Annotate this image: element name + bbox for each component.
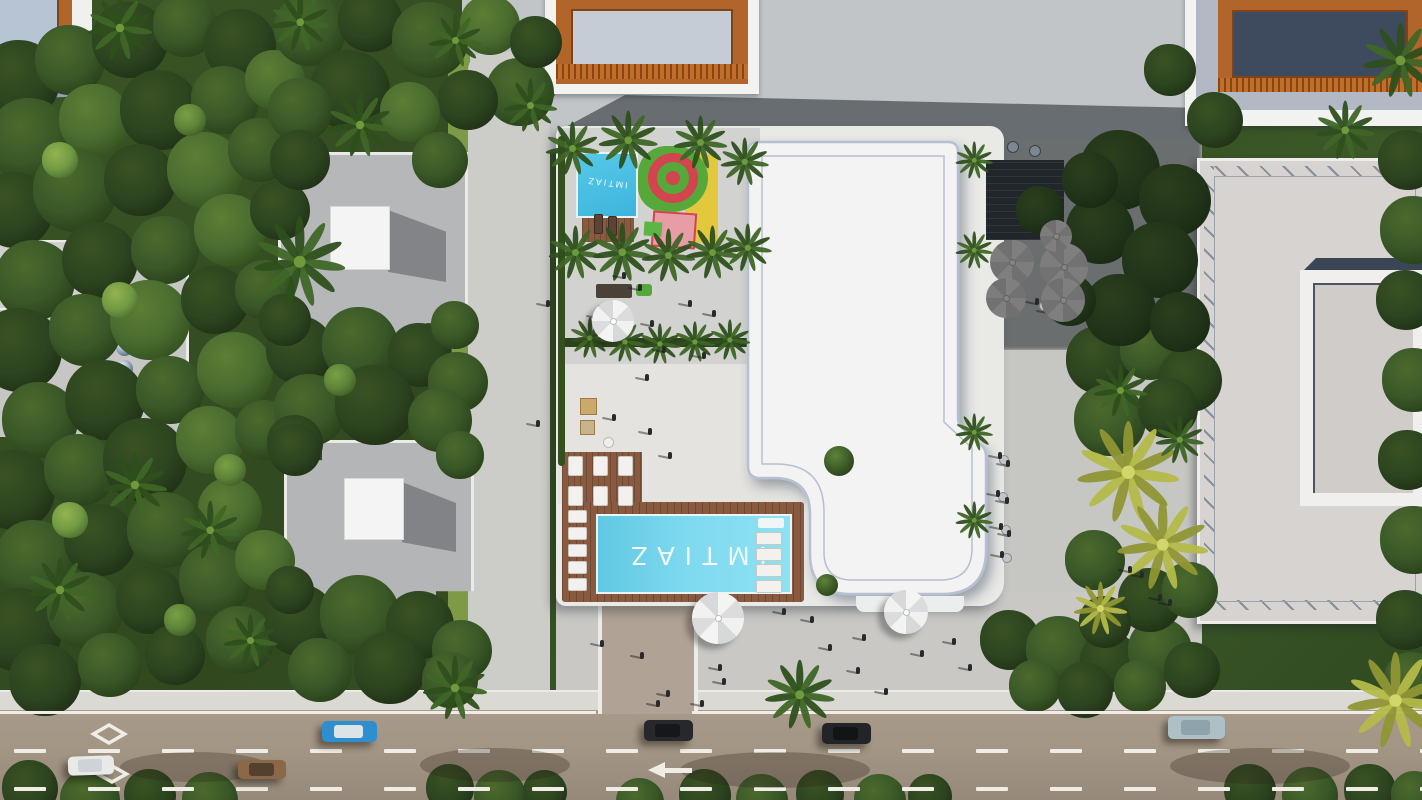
lane-dash [1346,787,1378,791]
person [862,634,866,641]
tree [354,632,426,704]
tree [1062,152,1118,208]
terrace-table [604,438,613,447]
palm-tree [955,413,994,452]
kids-pool-brand-text: IMTIAZ [578,175,637,192]
tree [164,604,196,636]
cafe-umbrella [884,590,928,634]
palm-tree [327,92,393,158]
palm-tree [1362,22,1422,99]
car [238,760,286,779]
person [536,420,540,427]
tree [131,216,199,284]
palm-tree [1116,498,1210,592]
tree [1376,590,1422,650]
lane-dash [828,787,860,791]
sun-lounger [568,544,587,557]
sun-lounger [618,486,633,506]
sun-lounger [756,580,782,593]
lane-dash [680,787,712,791]
lane-dash [310,749,342,753]
car [322,721,377,742]
palm-tree [720,137,770,187]
rooftop-chair [1030,146,1040,156]
person [999,523,1003,530]
car [644,720,693,741]
market-stall [580,398,597,415]
orange-roof-slats [556,64,748,79]
tree [1150,292,1210,352]
tree [288,638,352,702]
car [68,755,115,776]
sun-lounger [756,548,782,561]
lane-dash [384,787,416,791]
person [650,320,654,327]
tree [9,644,81,716]
tree [438,70,498,130]
palm-tree [673,115,728,170]
tree [412,132,468,188]
palm-tree [1155,415,1205,465]
lane-dash [976,787,1008,791]
person [884,688,888,695]
tree-shadow [1170,748,1350,784]
lane-dash [88,749,120,753]
cafe-umbrella [692,592,744,644]
person [662,346,666,353]
tree [1114,660,1166,712]
round-bush [824,446,854,476]
tree [174,104,206,136]
palm-tree [955,501,994,540]
palm-tree [87,0,153,61]
tree [270,130,330,190]
tree [324,364,356,396]
lane-dash [1050,787,1082,791]
pergola-bench [596,284,632,298]
palm-tree [1073,581,1128,636]
person [668,452,672,459]
tree [1164,642,1220,698]
palm-tree [1093,363,1148,418]
tree [1009,660,1061,712]
palm-tree [102,452,168,518]
person [722,678,726,685]
person [828,644,832,651]
tree [436,431,484,479]
palm-tree [270,0,331,52]
lane-dash [902,749,934,753]
lane-dash [236,787,268,791]
palm-tree [955,231,994,270]
palm-tree [1315,100,1376,161]
person [1035,298,1039,305]
sun-lounger [756,564,782,577]
aerial-render: IMTIAZ IMTIAZ (function(){ [0,0,1422,800]
person [718,664,722,671]
car-windshield [655,724,680,737]
lane-dash [1346,749,1378,753]
sun-lounger [618,456,633,476]
palm-tree [180,500,241,561]
car-windshield [334,725,363,738]
palm-tree [27,557,93,623]
person [810,616,814,623]
person [998,452,1002,459]
person [856,667,860,674]
sun-lounger [593,456,608,476]
car-windshield [78,759,102,772]
palm-tree [723,223,773,273]
pool-steps [758,518,784,528]
tree [42,142,78,178]
palm-tree [764,659,836,731]
person [996,490,1000,497]
person [968,664,972,671]
tree [1144,44,1196,96]
cafe-umbrella [1040,220,1072,252]
tree [52,502,88,538]
person [656,700,660,707]
palm-tree [598,110,659,171]
sun-lounger [568,578,587,591]
lane-dash [1198,787,1230,791]
cafe-umbrella [1041,278,1085,322]
car-windshield [1181,720,1211,735]
person [640,652,644,659]
hedge-strip [558,136,565,466]
sun-lounger [568,510,587,523]
palm-tree [422,655,488,721]
sun-lounger [568,486,583,506]
person [782,608,786,615]
person [700,700,704,707]
tree [1187,92,1243,148]
road-edge-line [0,711,596,714]
person [1006,460,1010,467]
tree [102,282,138,318]
palm-tree [503,78,558,133]
lane-dash [1050,749,1082,753]
roof-cube [344,478,404,540]
market-stall [580,420,595,435]
lane-dash [680,749,712,753]
lane-dash [606,749,638,753]
lane-dash [606,787,638,791]
lane-dash [902,787,934,791]
cafe-umbrella [990,240,1034,284]
tree [266,566,314,614]
palm-tree [253,215,347,309]
sun-lounger [568,561,587,574]
person [600,640,604,647]
person [1128,566,1132,573]
tree [269,424,321,476]
lane-dash [384,749,416,753]
lane-dash [458,787,490,791]
lane-dash [162,787,194,791]
car [1168,716,1225,739]
tree [104,144,176,216]
person [612,414,616,421]
person [622,272,626,279]
lane-dash [828,749,860,753]
gazebo-canopy [592,300,634,342]
palm-tree [1346,651,1422,750]
person [688,300,692,307]
rooftop-chair [1008,142,1018,152]
person [648,428,652,435]
person [920,650,924,657]
car-windshield [249,763,274,775]
person [1000,551,1004,558]
tree [78,633,142,697]
lane-dash [14,749,46,753]
sun-lounger [593,486,608,506]
lane-dash [1272,787,1304,791]
lane-dash [310,787,342,791]
round-bush [816,574,838,596]
tree-shadow [680,752,870,788]
palm-tree [709,319,751,361]
lane-dash [14,787,46,791]
palm-tree [428,13,483,68]
left-arrow-marking [664,768,692,773]
car-windshield [833,727,858,740]
tree [1057,662,1113,718]
driveway [598,598,698,714]
person [702,352,706,359]
person [712,310,716,317]
lane-dash [1124,787,1156,791]
palm-tree [223,613,278,668]
lane-dash [1124,749,1156,753]
lane-dash [976,749,1008,753]
lane-dash [532,787,564,791]
cafe-table [1003,554,1011,562]
lane-dash [88,787,120,791]
tree [431,301,479,349]
sun-lounger [756,532,782,545]
person [546,300,550,307]
person [1007,530,1011,537]
person [645,374,649,381]
person [666,690,670,697]
person [1158,594,1162,601]
tree [214,454,246,486]
cafe-umbrella [986,278,1026,318]
tree-shadow [420,748,570,782]
playground-center [666,171,680,185]
sun-lounger [568,527,587,540]
tree [1084,274,1156,346]
person [952,638,956,645]
lane-dash [236,749,268,753]
person [1140,571,1144,578]
tree [197,332,273,408]
sun-lounger [568,456,583,476]
person [1005,497,1009,504]
tree [510,16,562,68]
left-arrow-head [648,762,665,778]
person [638,284,642,291]
person [1168,599,1172,606]
palm-tree [955,141,994,180]
